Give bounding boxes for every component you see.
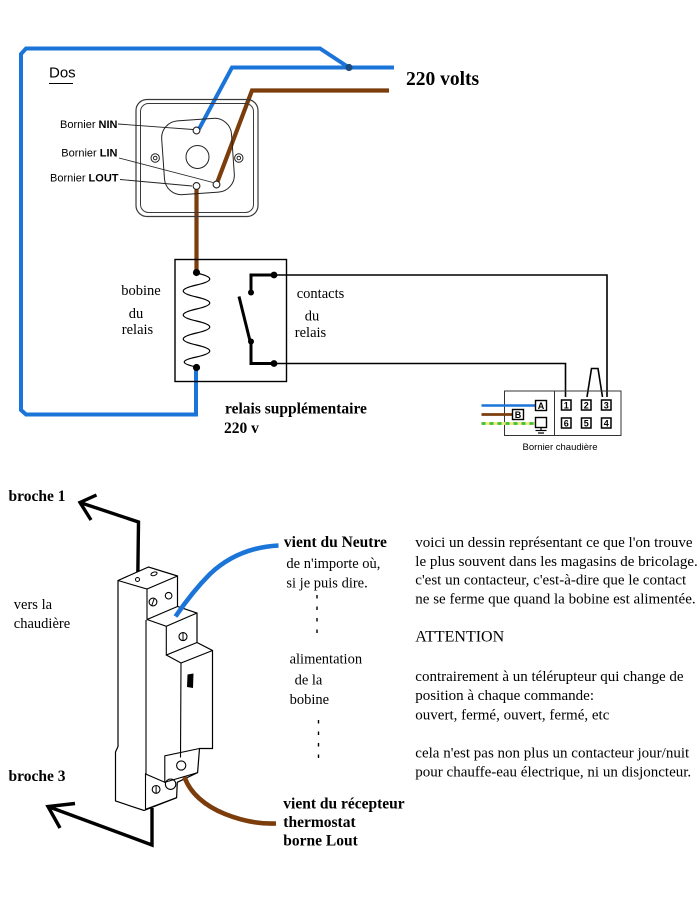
svg-text:borne Lout: borne Lout [283,833,358,850]
svg-text:du: du [305,309,320,325]
svg-text:le plus souvent dans les magas: le plus souvent dans les magasins de bri… [415,554,697,570]
svg-text:bobine: bobine [121,283,160,299]
svg-text:de n'importe où,: de n'importe où, [286,556,380,572]
svg-text:Bornier LIN: Bornier LIN [61,148,117,160]
svg-text:ne se ferme que quand la bobin: ne se ferme que quand la bobine est alim… [415,591,695,607]
svg-text:1: 1 [564,401,569,411]
svg-text:vers la: vers la [14,597,53,613]
svg-text:voici un dessin représentant c: voici un dessin représentant ce que l'on… [415,535,693,551]
svg-text:pour chauffe-eau électrique, n: pour chauffe-eau électrique, ni un disjo… [415,765,691,781]
svg-text:Dos: Dos [49,65,76,82]
svg-text:A: A [538,401,545,411]
svg-text:B: B [515,410,522,420]
svg-text:3: 3 [604,401,609,411]
svg-text:alimentation: alimentation [290,652,363,668]
svg-text:220 volts: 220 volts [406,69,480,90]
svg-text:de la: de la [295,673,323,689]
svg-text:contacts: contacts [297,286,345,302]
svg-text:2: 2 [584,401,589,411]
svg-text:ATTENTION: ATTENTION [415,629,504,646]
svg-text:6: 6 [564,419,569,429]
svg-text:thermostat: thermostat [283,814,356,831]
svg-text:Bornier LOUT: Bornier LOUT [50,173,119,185]
svg-text:bobine: bobine [290,692,329,708]
svg-text:relais: relais [295,325,327,341]
svg-text:4: 4 [604,419,609,429]
svg-text:Bornier NIN: Bornier NIN [60,119,118,131]
svg-text:Bornier chaudière: Bornier chaudière [523,442,598,453]
svg-text:broche 3: broche 3 [9,768,66,785]
svg-text:5: 5 [584,419,589,429]
svg-text:si je puis dire.: si je puis dire. [286,576,367,592]
svg-text:cela n'est pas non plus un con: cela n'est pas non plus un contacteur jo… [415,746,690,762]
svg-text:broche 1: broche 1 [9,488,66,505]
svg-text:du: du [129,306,144,322]
svg-text:c'est un contacteur, c'est-à-d: c'est un contacteur, c'est-à-dire que le… [415,573,687,589]
svg-text:relais: relais [122,322,154,338]
svg-text:vient du récepteur: vient du récepteur [283,796,405,813]
svg-text:contrairement à un télérupteur: contrairement à un télérupteur qui chang… [415,669,684,685]
svg-text:chaudière: chaudière [14,616,70,632]
svg-text:relais supplémentaire: relais supplémentaire [225,401,367,418]
svg-text:position à chaque commande:: position à chaque commande: [415,688,594,704]
svg-text:ouvert, fermé, ouvert, fermé,: ouvert, fermé, ouvert, fermé, etc [415,708,609,724]
svg-text:vient du Neutre: vient du Neutre [284,534,387,551]
svg-text:220 v: 220 v [224,420,259,437]
